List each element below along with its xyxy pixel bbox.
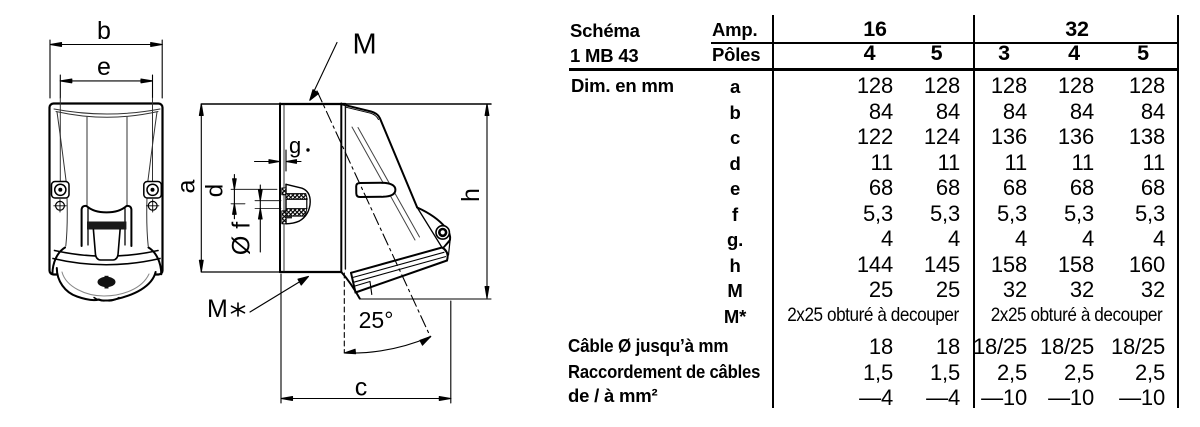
svg-text:g: g	[289, 133, 301, 158]
svg-text:b: b	[97, 17, 111, 45]
svg-text:M: M	[353, 29, 377, 61]
svg-text:a: a	[173, 179, 201, 193]
svg-text:Ø f: Ø f	[228, 222, 256, 255]
svg-text:c: c	[355, 374, 368, 402]
svg-text:25°: 25°	[359, 307, 394, 333]
svg-text:M: M	[207, 295, 228, 323]
svg-text:d: d	[202, 184, 229, 197]
svg-text:h: h	[457, 188, 485, 202]
svg-text:e: e	[97, 53, 111, 81]
